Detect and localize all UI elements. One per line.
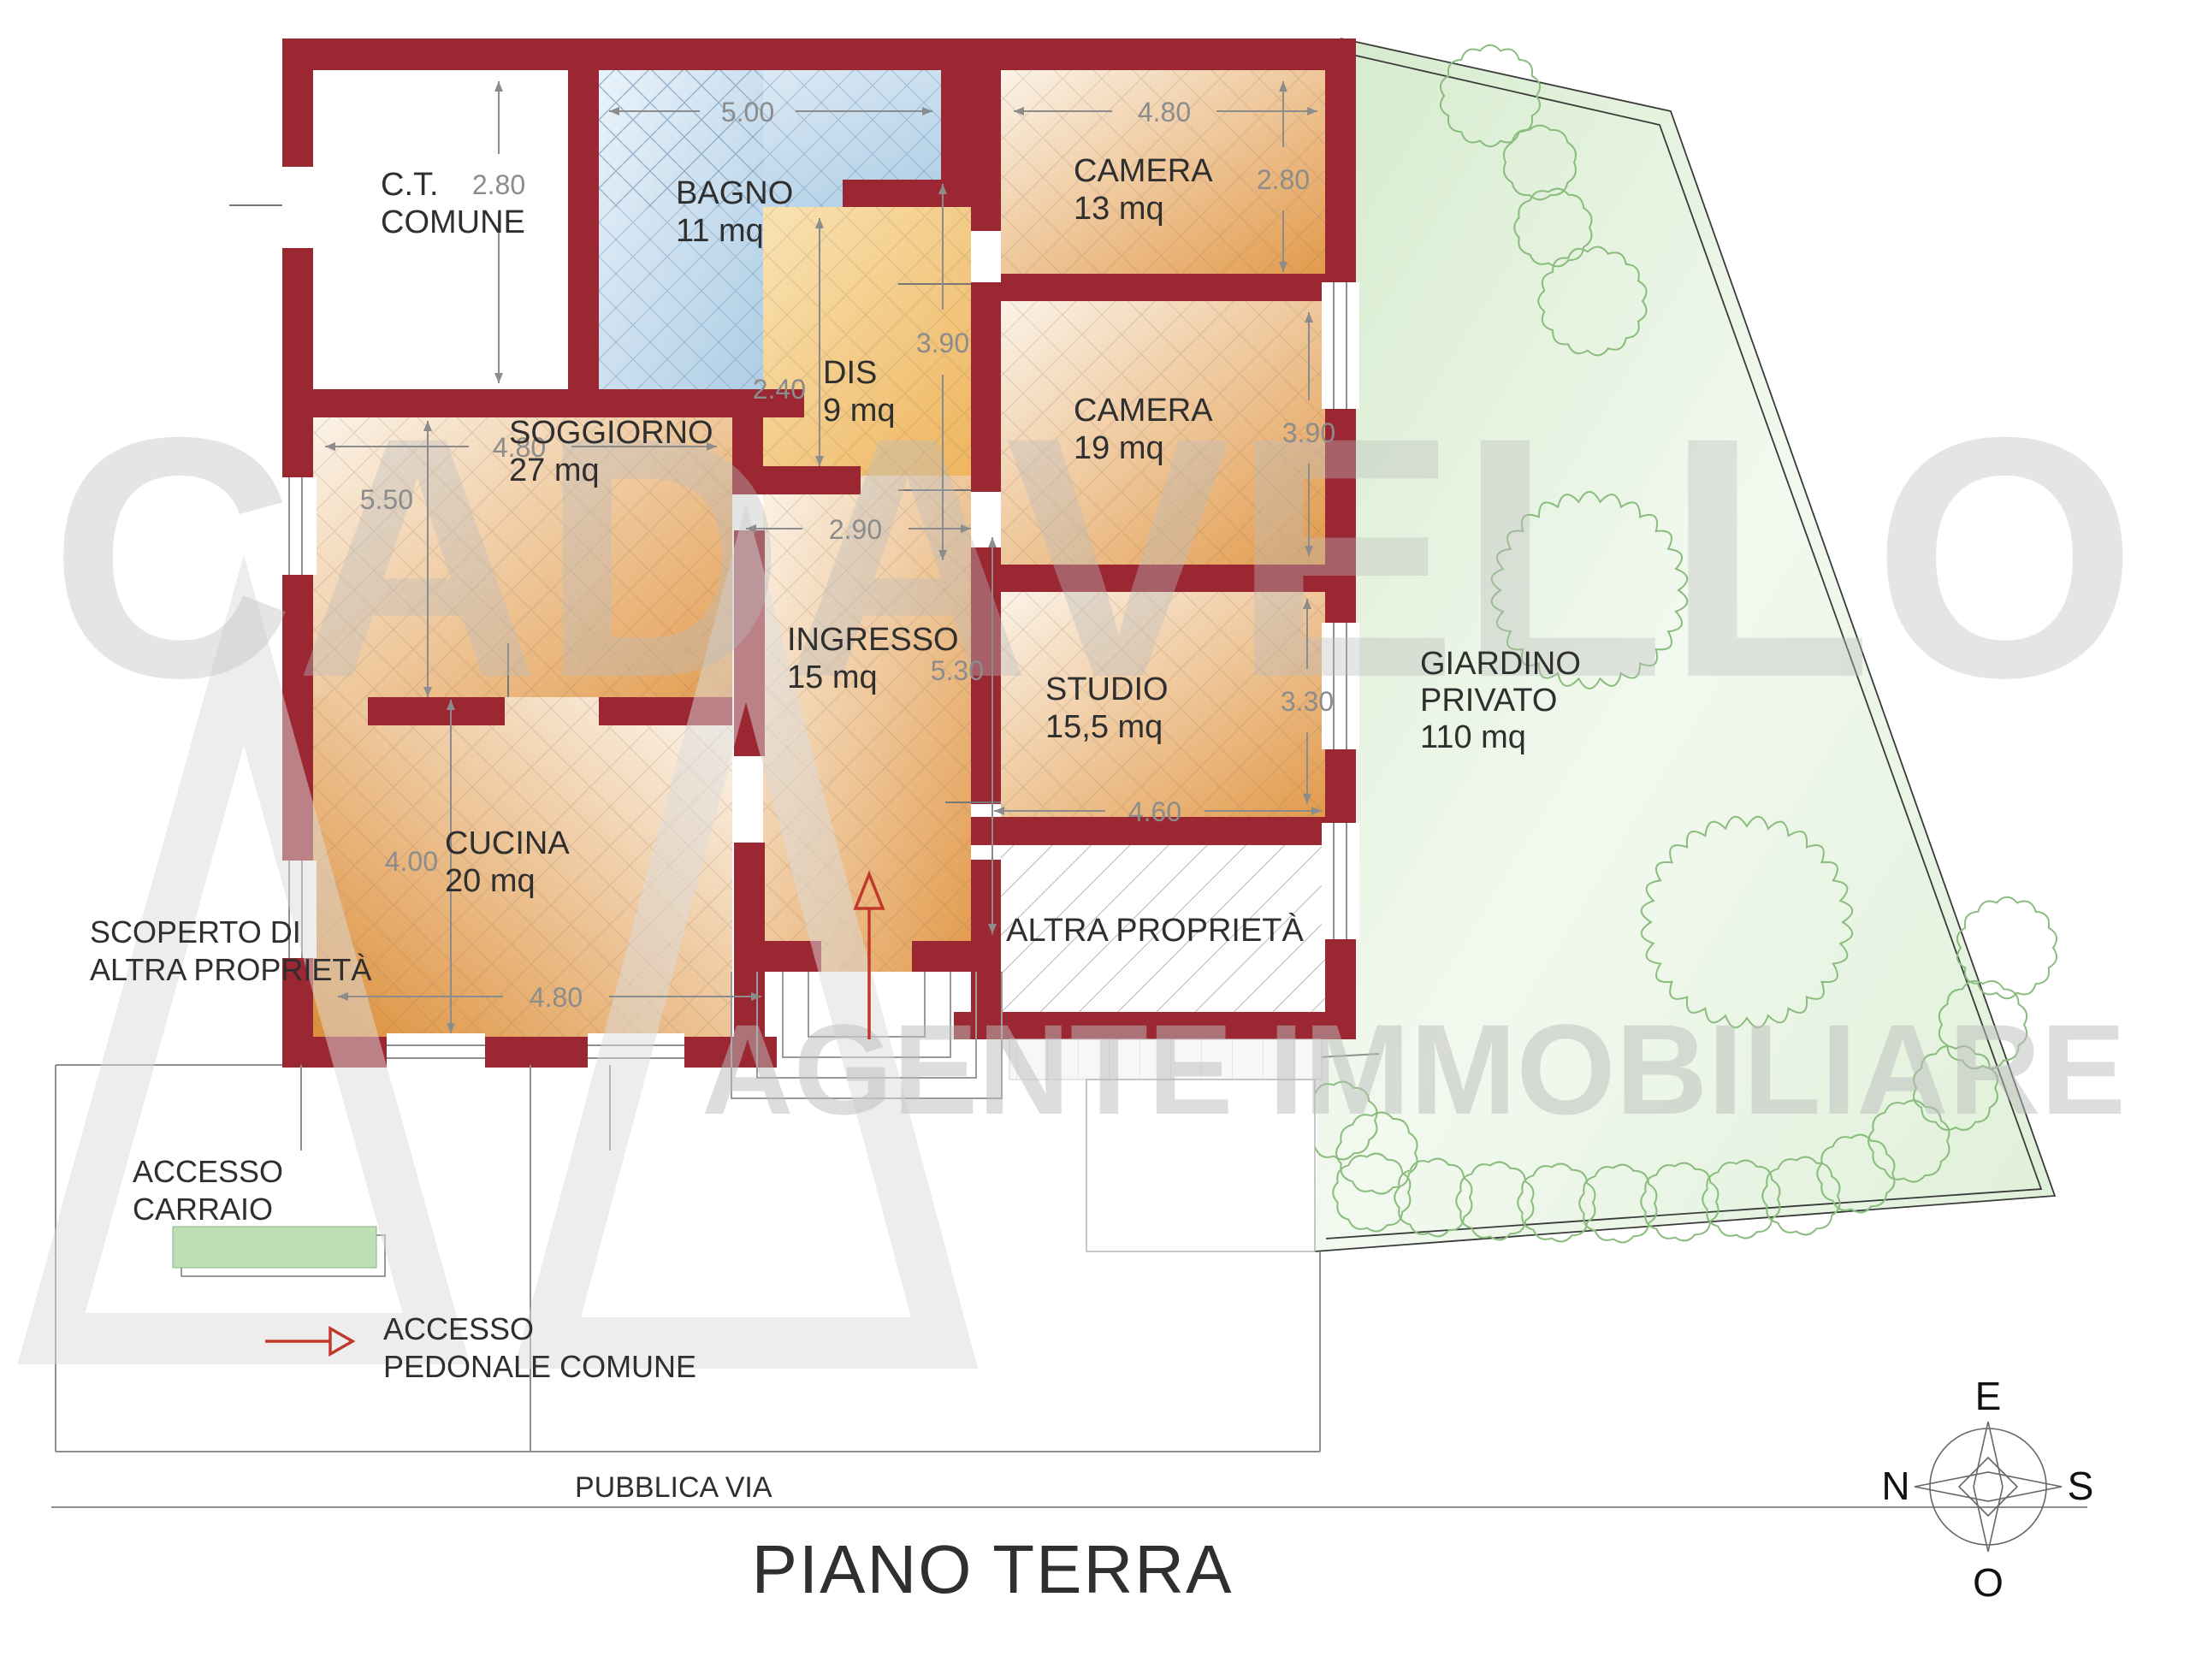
svg-text:9 mq: 9 mq — [823, 393, 895, 429]
floor-plan-canvas: CADAVELLO AGENTE IMMOBILIARE 5.00 2.80 4… — [0, 0, 2190, 1680]
svg-text:2.90: 2.90 — [829, 514, 882, 545]
compass-east: E — [1975, 1374, 2002, 1418]
door-ct — [279, 167, 317, 248]
svg-text:GIARDINO: GIARDINO — [1420, 646, 1581, 682]
watermark-tagline: AGENTE IMMOBILIARE — [701, 997, 2126, 1141]
compass-south: S — [2068, 1464, 2094, 1508]
window-icon — [1322, 823, 1359, 939]
svg-text:PEDONALE COMUNE: PEDONALE COMUNE — [383, 1349, 696, 1384]
svg-text:27 mq: 27 mq — [509, 453, 600, 488]
label-accesso-carraio: ACCESSO CARRAIO — [133, 1154, 283, 1227]
svg-text:PRIVATO: PRIVATO — [1420, 683, 1557, 719]
svg-text:4.60: 4.60 — [1128, 796, 1181, 827]
svg-text:15,5 mq: 15,5 mq — [1045, 709, 1163, 745]
svg-text:4.80: 4.80 — [1138, 97, 1191, 127]
svg-text:CAMERA: CAMERA — [1074, 153, 1213, 189]
svg-text:SOGGIORNO: SOGGIORNO — [509, 415, 713, 451]
svg-text:19 mq: 19 mq — [1074, 430, 1164, 466]
svg-text:2.40: 2.40 — [753, 374, 806, 405]
svg-text:11 mq: 11 mq — [676, 213, 764, 249]
svg-text:CUCINA: CUCINA — [445, 825, 570, 861]
compass-rose: E N S O — [1881, 1374, 2093, 1605]
svg-text:ALTRA PROPRIETÀ: ALTRA PROPRIETÀ — [90, 952, 371, 987]
svg-text:3.30: 3.30 — [1281, 686, 1334, 717]
svg-text:STUDIO: STUDIO — [1045, 671, 1169, 707]
page-title: PIANO TERRA — [752, 1531, 1234, 1607]
svg-text:5.30: 5.30 — [931, 655, 984, 686]
svg-text:2.80: 2.80 — [1257, 164, 1310, 195]
svg-text:5.50: 5.50 — [360, 484, 413, 515]
svg-text:15 mq: 15 mq — [787, 660, 878, 695]
svg-text:3.90: 3.90 — [1282, 417, 1335, 448]
svg-text:CAMERA: CAMERA — [1074, 393, 1213, 429]
svg-text:ACCESSO: ACCESSO — [133, 1154, 283, 1189]
svg-text:COMUNE: COMUNE — [381, 204, 525, 240]
svg-text:20 mq: 20 mq — [445, 863, 536, 899]
label-altra-proprieta: ALTRA PROPRIETÀ — [1006, 912, 1304, 949]
svg-text:C.T.: C.T. — [381, 167, 439, 203]
svg-text:110 mq: 110 mq — [1420, 719, 1526, 755]
svg-text:DIS: DIS — [823, 355, 877, 391]
svg-text:2.80: 2.80 — [472, 169, 525, 200]
label-pubblica-via: PUBBLICA VIA — [575, 1471, 772, 1504]
svg-text:4.80: 4.80 — [530, 982, 583, 1013]
compass-north: N — [1881, 1464, 1909, 1508]
svg-text:INGRESSO: INGRESSO — [787, 622, 959, 658]
svg-text:SCOPERTO DI: SCOPERTO DI — [90, 914, 301, 949]
svg-text:CARRAIO: CARRAIO — [133, 1192, 273, 1227]
svg-text:13 mq: 13 mq — [1074, 191, 1164, 227]
svg-text:5.00: 5.00 — [721, 97, 774, 127]
window-icon — [387, 1033, 485, 1071]
compass-west: O — [1973, 1560, 2004, 1605]
hedge-strip — [173, 1227, 376, 1268]
svg-text:4.00: 4.00 — [385, 846, 438, 877]
bush-icon — [1957, 897, 2057, 999]
svg-text:ACCESSO: ACCESSO — [383, 1311, 534, 1346]
svg-text:3.90: 3.90 — [916, 328, 969, 358]
svg-text:BAGNO: BAGNO — [676, 175, 793, 211]
